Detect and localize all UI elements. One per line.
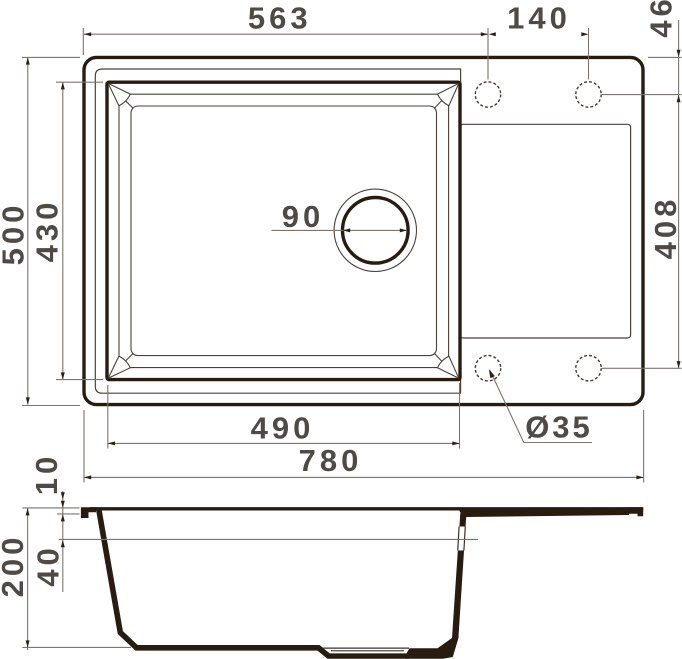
svg-text:200: 200 xyxy=(0,534,30,598)
svg-text:430: 430 xyxy=(30,199,65,263)
svg-text:10: 10 xyxy=(29,453,64,495)
svg-text:408: 408 xyxy=(648,196,682,260)
svg-text:140: 140 xyxy=(507,1,571,36)
svg-text:40: 40 xyxy=(30,544,65,586)
svg-text:563: 563 xyxy=(248,1,312,36)
svg-text:90: 90 xyxy=(282,199,324,234)
svg-text:Ø35: Ø35 xyxy=(525,410,593,445)
svg-text:490: 490 xyxy=(251,411,315,446)
svg-text:46: 46 xyxy=(644,0,679,38)
svg-text:500: 500 xyxy=(0,202,31,266)
svg-text:780: 780 xyxy=(299,443,363,478)
